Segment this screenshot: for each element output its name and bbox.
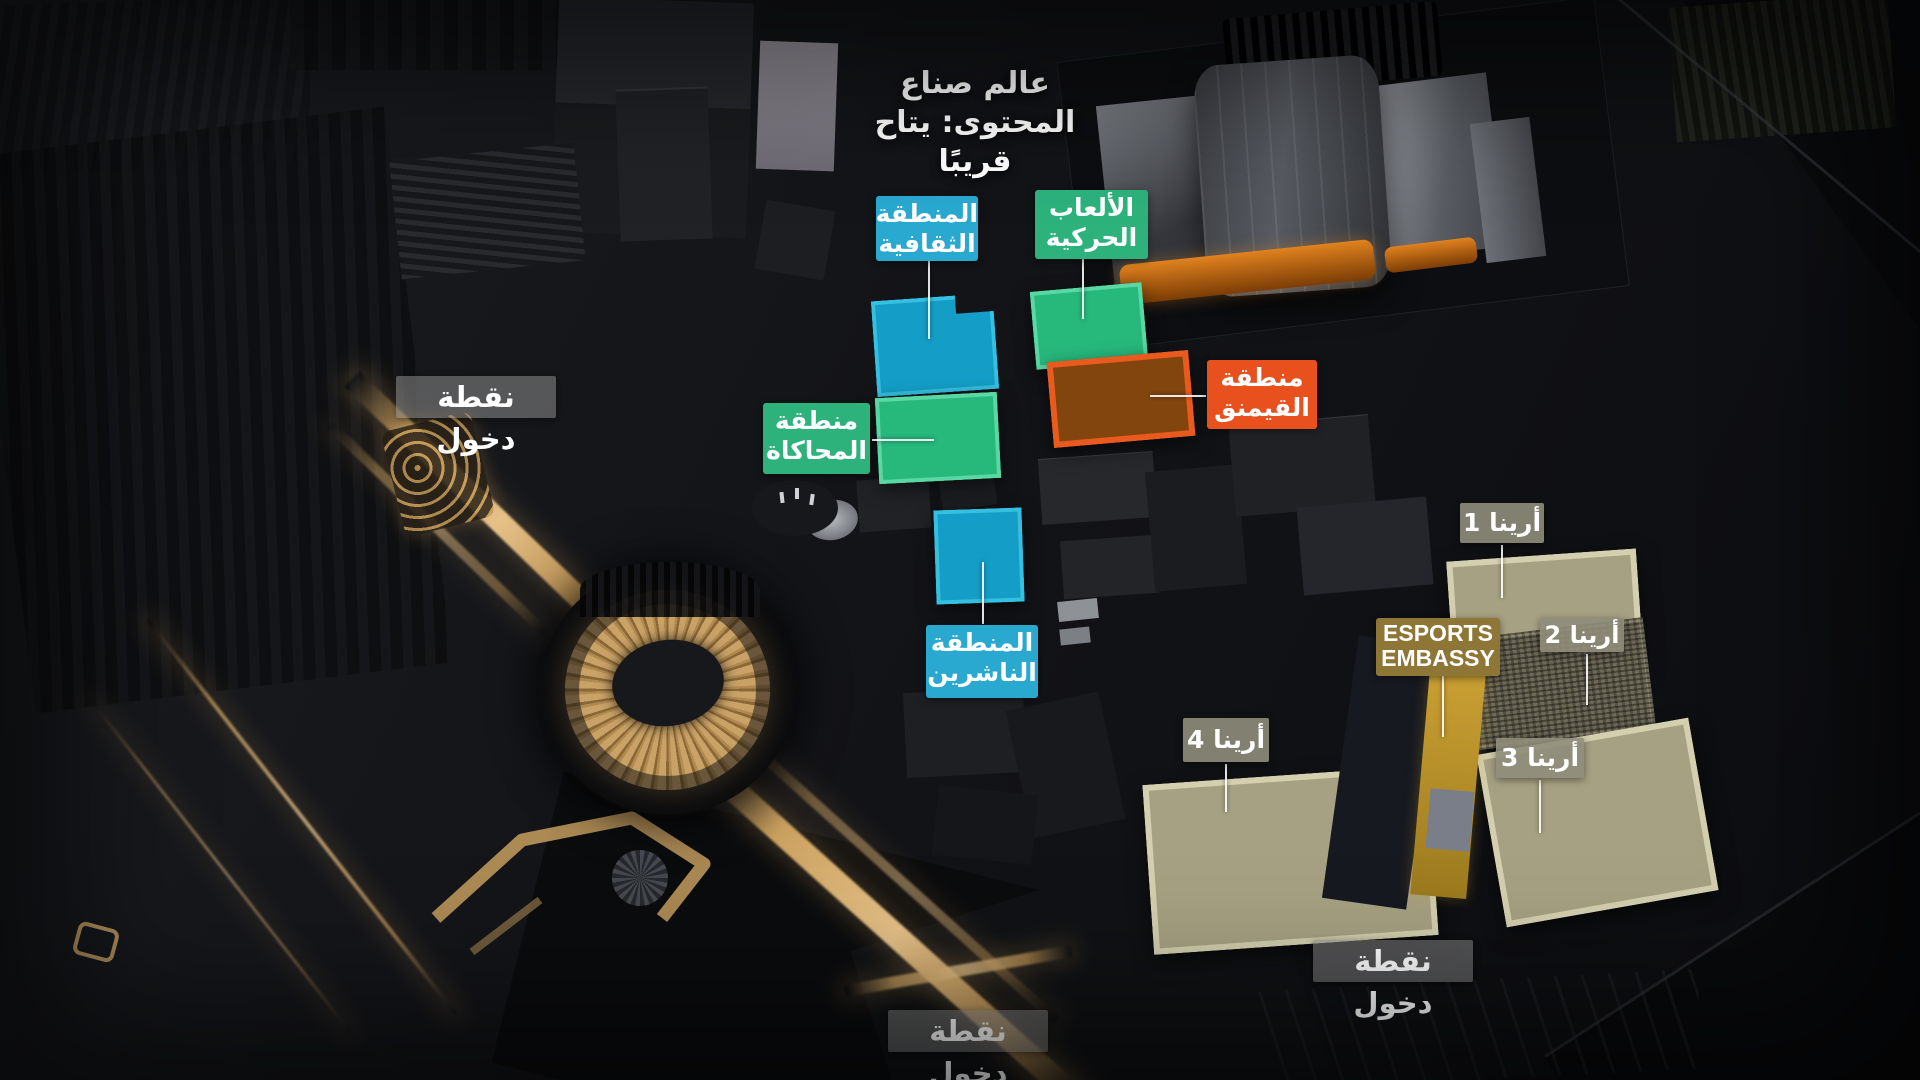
zone-label-publishers-line2: الناشرين bbox=[926, 658, 1038, 688]
arena-label-4[interactable]: أرينا 4 bbox=[1183, 718, 1269, 762]
zone-label-publishers[interactable]: المنطقة الناشرين bbox=[926, 625, 1038, 698]
zone-label-motion-line2: الحركية bbox=[1035, 223, 1148, 253]
arena-label-2[interactable]: أرينا 2 bbox=[1540, 618, 1624, 652]
entry-point-label-west[interactable]: نقطة دخول bbox=[396, 376, 556, 418]
zone-label-simulation-line2: المحاكاة bbox=[763, 436, 870, 466]
zone-overlay-gaming[interactable] bbox=[1047, 350, 1196, 448]
leader-arena-3 bbox=[1539, 780, 1541, 833]
warehouse-shape bbox=[1145, 464, 1247, 592]
zone-overlay-simulation[interactable] bbox=[875, 392, 1001, 484]
zone-label-publishers-line1: المنطقة bbox=[926, 628, 1038, 658]
corrugated-roof-building bbox=[389, 143, 585, 280]
warehouse-shape bbox=[856, 476, 931, 533]
arena-label-1[interactable]: أرينا 1 bbox=[1460, 503, 1544, 543]
warehouse-shape bbox=[903, 687, 1027, 778]
esports-embassy-line1: ESPORTS bbox=[1376, 621, 1500, 646]
lit-marker-corner bbox=[71, 920, 120, 964]
zone-label-gaming-line2: القيمنق bbox=[1207, 393, 1317, 423]
warehouse-shape bbox=[1296, 497, 1433, 596]
gray-building-small bbox=[754, 199, 835, 280]
zone-overlay-cultural[interactable] bbox=[871, 293, 999, 397]
zone-label-cultural[interactable]: المنطقة الثقافية bbox=[876, 196, 978, 261]
zone-overlay-publishers[interactable] bbox=[933, 507, 1024, 604]
leader-arena-4 bbox=[1225, 764, 1227, 812]
leader-motion-games bbox=[1082, 257, 1084, 319]
leader-arena-2 bbox=[1586, 654, 1588, 705]
warehouse-shape bbox=[1060, 535, 1159, 599]
zone-label-gaming-line1: منطقة bbox=[1207, 363, 1317, 393]
small-truck bbox=[1059, 626, 1091, 645]
tree-row-top bbox=[290, 0, 580, 70]
zone-label-motion-line1: الألعاب bbox=[1035, 193, 1148, 223]
leader-simulation bbox=[872, 439, 934, 441]
small-truck bbox=[1057, 598, 1099, 622]
zone-label-simulation[interactable]: منطقة المحاكاة bbox=[763, 403, 870, 474]
leader-publishers bbox=[982, 562, 984, 624]
zone-label-cultural-line1: المنطقة bbox=[876, 199, 978, 229]
parking-lines bbox=[1258, 969, 1703, 1080]
zone-label-motion-games[interactable]: الألعاب الحركية bbox=[1035, 190, 1148, 259]
leader-cultural bbox=[928, 261, 930, 339]
tiny-figure bbox=[795, 488, 799, 499]
warehouse-shape bbox=[1038, 451, 1157, 525]
round-turbine-building bbox=[612, 850, 668, 906]
lit-promenade-edge bbox=[91, 701, 352, 1034]
light-tower-building bbox=[756, 41, 838, 172]
leader-arena-1 bbox=[1501, 545, 1503, 598]
arena-label-3[interactable]: أرينا 3 bbox=[1496, 738, 1584, 778]
warehouse-shape bbox=[932, 785, 1039, 865]
leader-esports-embassy bbox=[1442, 675, 1444, 737]
gray-hall-building bbox=[615, 86, 712, 241]
zone-label-gaming[interactable]: منطقة القيمنق bbox=[1207, 360, 1317, 429]
leader-gaming bbox=[1150, 395, 1206, 397]
entry-point-label-southeast[interactable]: نقطة دخول bbox=[1313, 940, 1473, 982]
plaza-crowd-rim bbox=[580, 562, 760, 617]
coming-soon-note: عالم صناع المحتوى: يتاح قريبًا bbox=[845, 64, 1105, 181]
zone-label-cultural-line2: الثقافية bbox=[876, 229, 978, 259]
entry-point-label-south[interactable]: نقطة دخول bbox=[888, 1010, 1048, 1052]
zone-label-simulation-line1: منطقة bbox=[763, 406, 870, 436]
esports-embassy-building-gray-segment bbox=[1425, 788, 1474, 852]
warehouse-shape bbox=[1228, 414, 1375, 517]
esports-embassy-line2: EMBASSY bbox=[1376, 646, 1500, 671]
esports-embassy-label[interactable]: ESPORTS EMBASSY bbox=[1376, 618, 1500, 676]
venue-model-map: عالم صناع المحتوى: يتاح قريبًا المنطقة ا… bbox=[0, 0, 1920, 1080]
